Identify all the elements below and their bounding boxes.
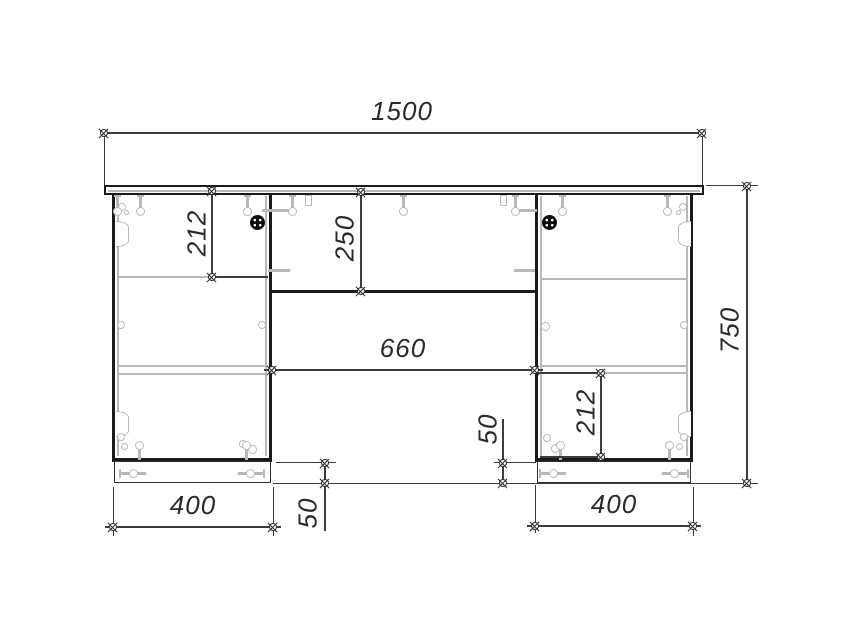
dim-label-apron: 250 — [330, 215, 361, 261]
screw-icon — [666, 195, 669, 208]
screw-icon — [138, 449, 141, 460]
cam-lock-icon — [121, 443, 128, 450]
dimension-line — [324, 463, 326, 531]
screw-icon — [668, 449, 671, 460]
dimension-marker-icon — [357, 287, 365, 295]
dim-label-left-drawer: 212 — [182, 210, 213, 256]
extension-line — [702, 136, 703, 185]
dimension-marker-icon — [499, 479, 507, 487]
shelf-pin-icon — [541, 322, 550, 331]
plinth-screw-icon — [120, 472, 146, 475]
dim-label-left-pedestal-width: 400 — [170, 490, 216, 521]
screw-icon — [514, 195, 517, 208]
dimension-marker-icon — [743, 182, 751, 190]
shelf-pin-icon — [680, 321, 688, 329]
left-pedestal-right-wall — [269, 194, 272, 462]
dimension-line — [264, 369, 543, 371]
cam-lock-icon — [680, 433, 688, 441]
plinth-screw-icon — [238, 472, 264, 475]
dim-label-total-height: 750 — [715, 307, 746, 353]
dim-label-right-drawer: 212 — [571, 389, 602, 435]
dimension-marker-icon — [597, 369, 605, 377]
hinge-arc-icon — [678, 221, 691, 247]
dimension-marker-icon — [531, 522, 539, 530]
left-pedestal-shelf-line — [117, 365, 267, 367]
extension-line — [273, 483, 758, 484]
slide-bracket-icon — [262, 209, 290, 212]
extension-line — [104, 136, 105, 185]
plinth-screw-icon — [540, 472, 566, 475]
desk-top-front-edge-line — [108, 190, 700, 192]
extension-line — [540, 456, 604, 458]
cam-lock-icon — [543, 434, 551, 442]
center-modesty-panel — [272, 290, 535, 293]
screw-icon — [116, 195, 119, 208]
dimension-marker-icon — [597, 453, 605, 461]
screw-icon — [246, 195, 249, 208]
screw-icon — [561, 195, 564, 208]
dimension-marker-icon — [321, 479, 329, 487]
dimension-marker-icon — [689, 522, 697, 530]
right-pedestal-left-wall — [535, 194, 538, 462]
right-pedestal-shelf-line — [540, 278, 688, 280]
slide-bracket-icon — [268, 269, 290, 272]
dimension-marker-icon — [321, 459, 329, 467]
cam-lock-icon — [117, 433, 125, 441]
slide-bracket-icon — [514, 269, 535, 272]
dowel-pin-icon — [305, 195, 312, 206]
dimension-line — [746, 186, 748, 483]
right-pedestal-shelf-line — [601, 372, 688, 374]
dim-label-total-width: 1500 — [371, 96, 433, 127]
dim-label-plinth-left: 50 — [293, 498, 324, 529]
dimension-marker-icon — [268, 366, 276, 374]
dimension-marker-icon — [269, 523, 277, 531]
shelf-pin-icon — [258, 321, 266, 329]
extension-line — [212, 276, 268, 278]
dim-label-right-pedestal-width: 400 — [591, 489, 637, 520]
dimension-marker-icon — [100, 129, 108, 137]
left-pedestal-shelf-line — [117, 373, 267, 375]
screw-icon — [291, 195, 294, 208]
screw-icon — [245, 449, 248, 460]
cam-lock-icon — [676, 210, 681, 215]
dimension-marker-icon — [208, 273, 216, 281]
dimension-line — [527, 525, 701, 527]
dimension-marker-icon — [499, 459, 507, 467]
left-pedestal-shelf-line — [117, 276, 213, 278]
dim-label-kneehole: 660 — [380, 333, 426, 364]
left-pedestal-left-wall — [112, 194, 115, 462]
hinge-arc-icon — [116, 221, 129, 247]
left-door-knob-icon — [250, 215, 265, 230]
dim-label-plinth-center: 50 — [473, 414, 504, 445]
cam-lock-icon — [676, 443, 683, 450]
dimension-marker-icon — [743, 479, 751, 487]
dimension-marker-icon — [109, 523, 117, 531]
dimension-line — [105, 526, 281, 528]
cam-lock-icon — [124, 210, 129, 215]
dimension-marker-icon — [357, 188, 365, 196]
plinth-screw-icon — [662, 472, 688, 475]
dimension-marker-icon — [698, 129, 706, 137]
extension-line — [538, 372, 601, 374]
right-pedestal-shelf-line — [540, 365, 688, 367]
screw-icon — [139, 195, 142, 208]
shelf-pin-icon — [117, 321, 125, 329]
screw-icon — [402, 195, 405, 208]
screw-icon — [559, 449, 562, 460]
dimension-marker-icon — [208, 187, 216, 195]
dimension-line — [104, 132, 702, 134]
dowel-pin-icon — [500, 195, 507, 206]
drawing-canvas: 1500 750 212 250 660 212 — [0, 0, 856, 642]
right-door-knob-icon — [542, 215, 557, 230]
